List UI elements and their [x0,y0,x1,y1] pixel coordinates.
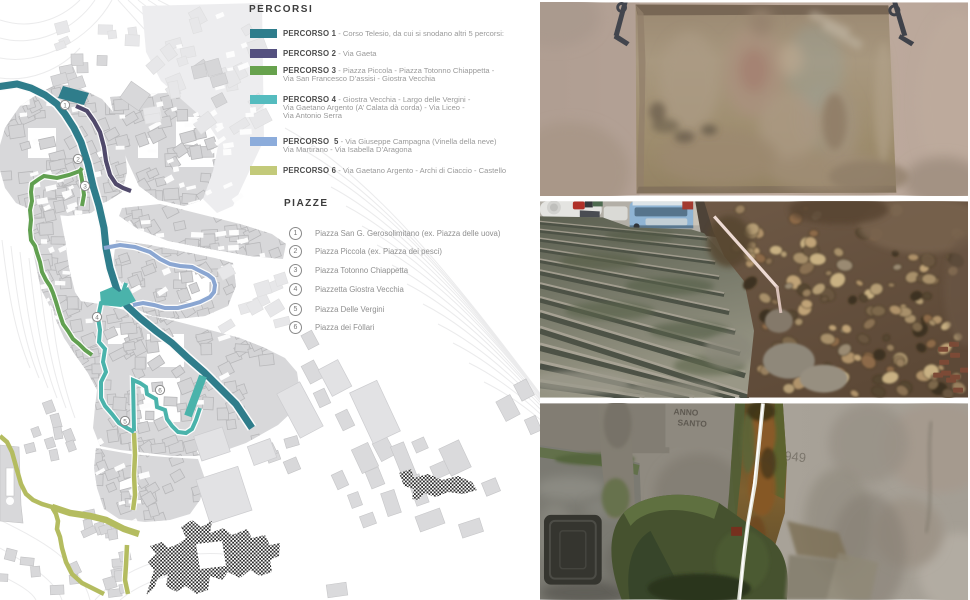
svg-text:ANNO: ANNO [673,406,699,417]
svg-text:4: 4 [95,315,99,322]
svg-text:1: 1 [63,103,67,110]
svg-text:3: 3 [83,184,87,191]
svg-text:2: 2 [76,157,80,164]
svg-text:5: 5 [123,419,127,426]
svg-text:6: 6 [158,388,162,395]
svg-text:SANTO: SANTO [677,417,707,429]
